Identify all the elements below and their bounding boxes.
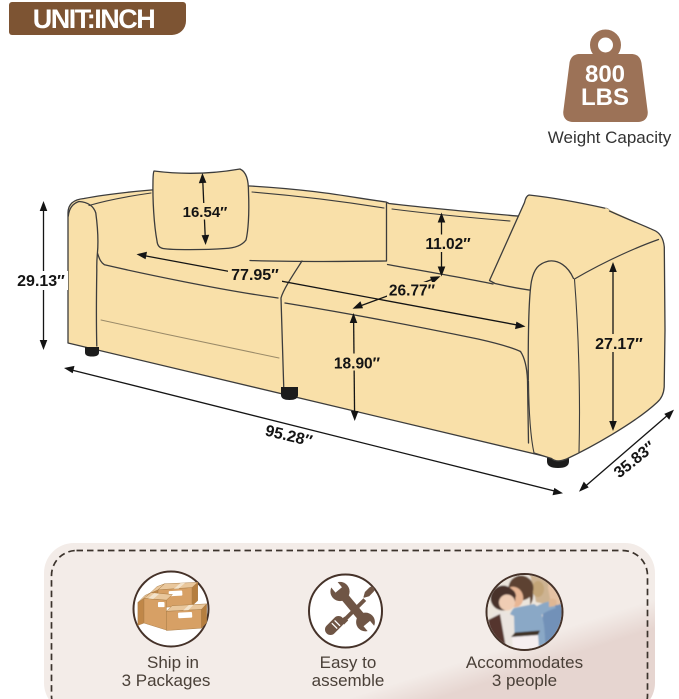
svg-text:Easy to: Easy to [320, 653, 377, 672]
svg-text:Accommodates: Accommodates [466, 653, 583, 672]
svg-text:Ship in: Ship in [147, 653, 199, 672]
svg-text:3 Packages: 3 Packages [122, 671, 211, 690]
svg-text:assemble: assemble [312, 671, 385, 690]
svg-text:3 people: 3 people [492, 671, 557, 690]
